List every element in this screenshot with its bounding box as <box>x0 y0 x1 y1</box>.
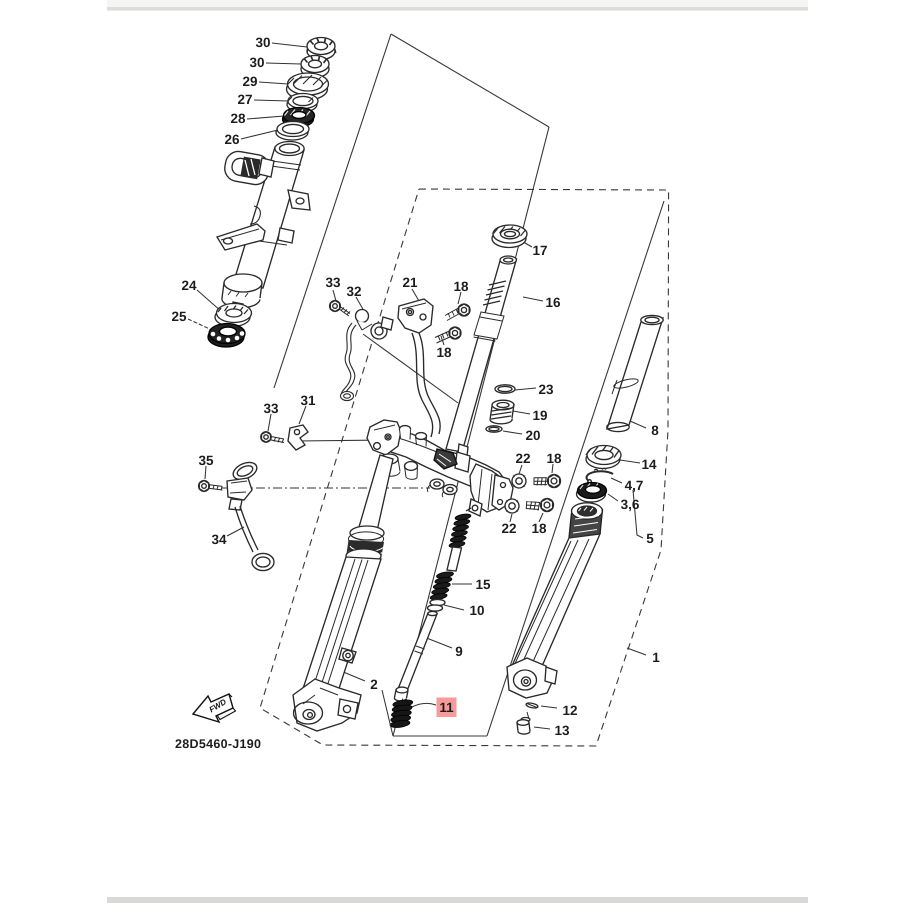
svg-text:29: 29 <box>242 74 257 89</box>
svg-text:5: 5 <box>646 531 654 546</box>
svg-text:1: 1 <box>652 650 660 665</box>
svg-text:9: 9 <box>455 644 463 659</box>
svg-text:2: 2 <box>370 677 378 692</box>
svg-text:31: 31 <box>300 393 316 408</box>
svg-text:33: 33 <box>263 401 279 416</box>
svg-text:28: 28 <box>230 111 246 126</box>
svg-text:25: 25 <box>171 309 187 324</box>
svg-text:34: 34 <box>211 532 227 547</box>
svg-text:18: 18 <box>436 345 452 360</box>
svg-text:18: 18 <box>531 521 547 536</box>
svg-text:20: 20 <box>525 428 540 443</box>
svg-text:23: 23 <box>538 382 554 397</box>
svg-text:26: 26 <box>224 132 240 147</box>
svg-text:3,6: 3,6 <box>621 497 640 512</box>
svg-text:11: 11 <box>439 700 454 715</box>
svg-text:14: 14 <box>641 457 657 472</box>
svg-text:35: 35 <box>198 453 214 468</box>
svg-text:22: 22 <box>501 521 516 536</box>
svg-text:13: 13 <box>554 723 570 738</box>
svg-text:19: 19 <box>532 408 547 423</box>
svg-text:33: 33 <box>325 275 341 290</box>
svg-text:4,7: 4,7 <box>625 478 644 493</box>
svg-text:18: 18 <box>453 279 469 294</box>
svg-text:12: 12 <box>562 703 577 718</box>
svg-text:30: 30 <box>255 35 270 50</box>
svg-text:21: 21 <box>402 275 418 290</box>
svg-text:24: 24 <box>181 278 197 293</box>
svg-text:15: 15 <box>475 577 491 592</box>
svg-text:8: 8 <box>651 423 659 438</box>
svg-text:22: 22 <box>515 451 530 466</box>
svg-text:16: 16 <box>545 295 561 310</box>
svg-text:32: 32 <box>346 284 361 299</box>
svg-text:17: 17 <box>532 243 547 258</box>
svg-text:10: 10 <box>469 603 484 618</box>
svg-text:27: 27 <box>237 92 252 107</box>
svg-text:18: 18 <box>546 451 562 466</box>
svg-text:28D5460-J190: 28D5460-J190 <box>175 737 261 751</box>
svg-text:30: 30 <box>249 55 264 70</box>
